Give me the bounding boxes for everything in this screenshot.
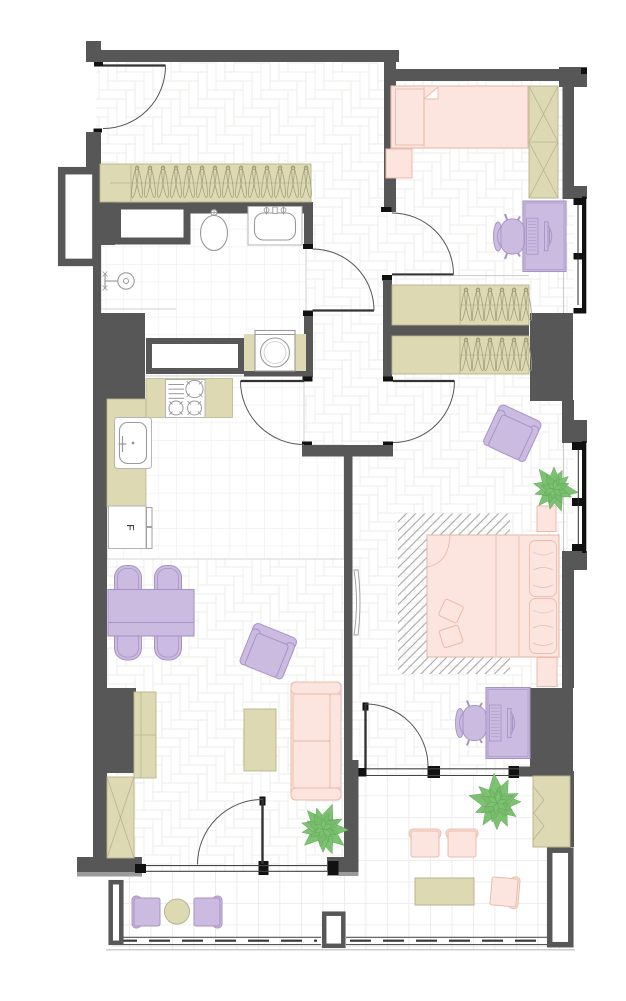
svg-text:F: F [124,524,136,530]
